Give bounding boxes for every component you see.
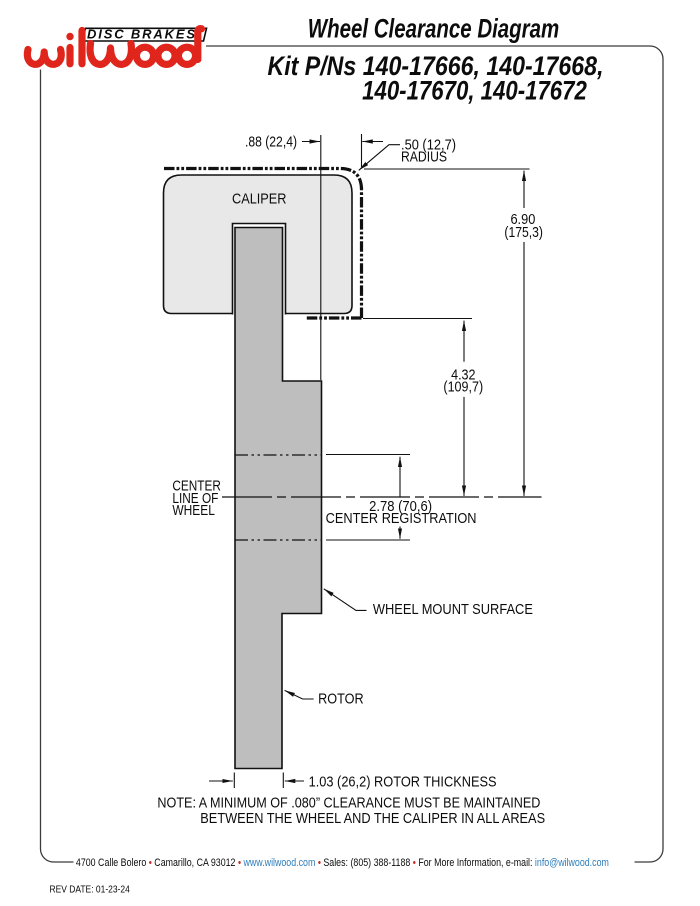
svg-text:WHEEL: WHEEL bbox=[172, 503, 215, 519]
svg-text:DISC BRAKES: DISC BRAKES bbox=[87, 27, 195, 42]
svg-text:Wheel Clearance Diagram: Wheel Clearance Diagram bbox=[308, 14, 560, 44]
svg-text:BETWEEN THE WHEEL AND THE CALI: BETWEEN THE WHEEL AND THE CALIPER IN ALL… bbox=[200, 811, 545, 827]
svg-text:CENTER REGISTRATION: CENTER REGISTRATION bbox=[326, 511, 477, 527]
svg-text:ROTOR: ROTOR bbox=[318, 692, 364, 708]
svg-text:WHEEL MOUNT SURFACE: WHEEL MOUNT SURFACE bbox=[373, 602, 533, 618]
svg-text:NOTE: A MINIMUM OF .080” CLEAR: NOTE: A MINIMUM OF .080” CLEARANCE MUST … bbox=[157, 796, 540, 812]
svg-text:RADIUS: RADIUS bbox=[401, 150, 447, 166]
svg-text:REV DATE: 01-23-24: REV DATE: 01-23-24 bbox=[50, 884, 131, 895]
svg-text:1.03 (26,2) ROTOR THICKNESS: 1.03 (26,2) ROTOR THICKNESS bbox=[309, 774, 497, 790]
svg-text:(175,3): (175,3) bbox=[504, 225, 543, 241]
svg-text:140-17670, 140-17672: 140-17670, 140-17672 bbox=[362, 76, 587, 106]
svg-text:(109,7): (109,7) bbox=[443, 379, 483, 395]
svg-text:4700 Calle Bolero • Camarillo,: 4700 Calle Bolero • Camarillo, CA 93012 … bbox=[76, 857, 609, 869]
svg-text:.88 (22,4): .88 (22,4) bbox=[245, 135, 297, 151]
svg-text:CALIPER: CALIPER bbox=[232, 192, 287, 208]
